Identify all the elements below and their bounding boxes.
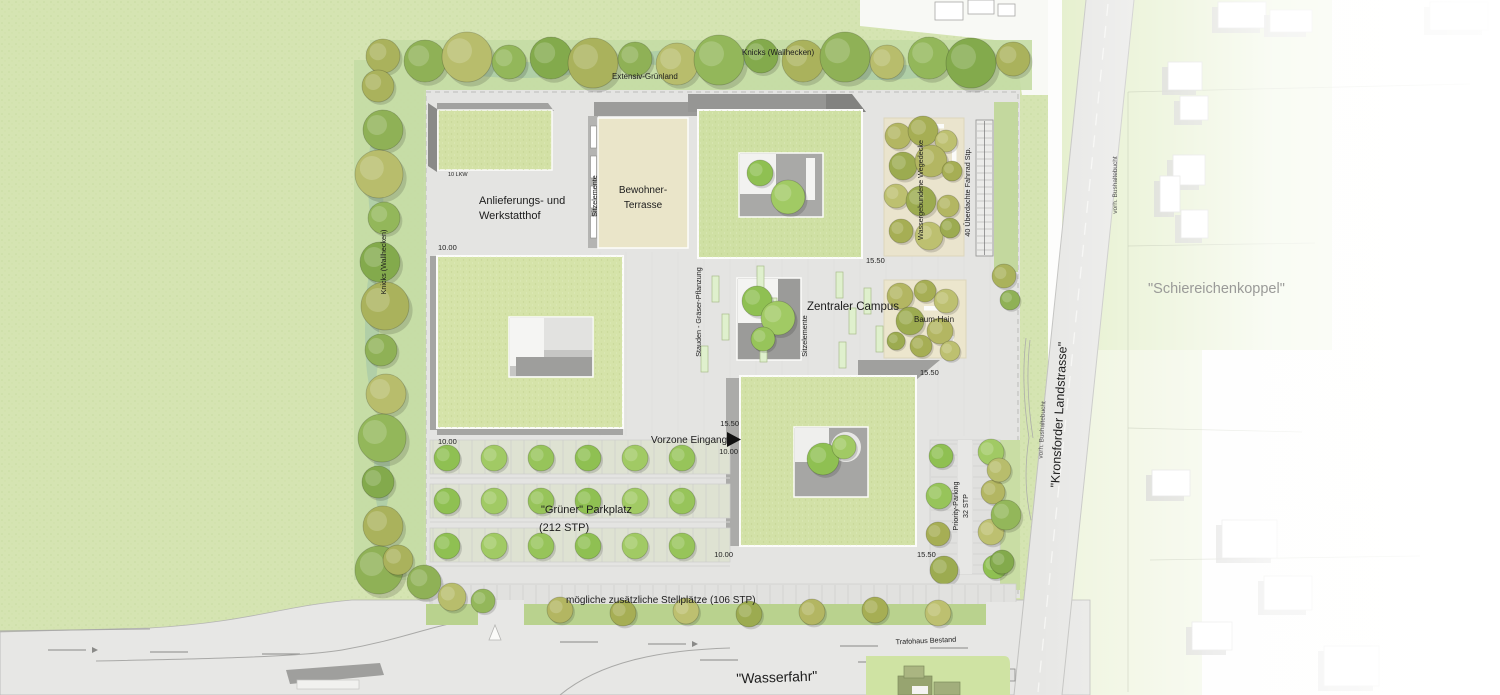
context-building-north	[968, 0, 994, 14]
tree-highlight	[981, 522, 994, 535]
label-lkw: 10 LKW	[448, 172, 468, 178]
tree-highlight	[367, 511, 387, 531]
tree-highlight	[484, 491, 497, 504]
tree-highlight	[484, 536, 497, 549]
label-zentraler-campus: Zentraler Campus	[807, 301, 899, 313]
tree-highlight	[672, 536, 685, 549]
tree-highlight	[368, 338, 384, 354]
tree-highlight	[928, 525, 940, 537]
bus-stop-platform	[297, 680, 359, 689]
tree-highlight	[942, 221, 952, 231]
tree-highlight	[989, 461, 1001, 473]
context-fade	[1040, 0, 1500, 695]
dim-se-bottom: 15.50	[917, 550, 936, 559]
tree-highlight	[621, 46, 638, 63]
label-baum-hain: Baum-Hain	[914, 315, 954, 324]
tree-highlight	[550, 600, 563, 613]
site-plan-drawing: Extensiv-Grünland Knicks (Wallhecken) Kn…	[0, 0, 1500, 695]
tree-highlight	[912, 42, 933, 63]
tree-highlight	[764, 305, 781, 322]
tree-highlight	[916, 283, 927, 294]
tree-highlight	[911, 120, 926, 135]
tree-highlight	[933, 560, 947, 574]
tree-highlight	[936, 292, 948, 304]
tree-highlight	[447, 38, 472, 63]
building-lkw-roof-texture	[438, 110, 552, 170]
tree-highlight	[939, 198, 950, 209]
seating-element	[712, 276, 719, 302]
tree-highlight	[495, 49, 512, 66]
tree-highlight	[873, 49, 890, 66]
tree-highlight	[912, 338, 923, 349]
context-building-north	[935, 2, 963, 20]
tree-highlight	[365, 74, 381, 90]
tree-highlight	[886, 187, 898, 199]
building-lkw-shadow	[428, 103, 437, 172]
tree-highlight	[371, 206, 387, 222]
label-sitzelemente-terrasse: Sitzelemente	[590, 175, 599, 217]
building-west-shadow-bottom	[437, 428, 623, 435]
tree-highlight	[437, 536, 450, 549]
label-priority-2: 32 STP	[961, 494, 970, 518]
seating-element	[839, 342, 846, 368]
label-knicks-left: Knicks (Wallhecken)	[379, 230, 388, 295]
tree-highlight	[994, 267, 1006, 279]
hedge-strip-northeast	[994, 102, 1018, 272]
tree-highlight	[360, 552, 384, 576]
tree-highlight	[531, 491, 544, 504]
seating-element	[591, 126, 597, 148]
tree-highlight	[360, 156, 384, 180]
tree-highlight	[578, 448, 591, 461]
context-building	[934, 682, 960, 695]
tree-highlight	[981, 442, 994, 455]
tree-highlight	[774, 184, 791, 201]
tree-highlight	[365, 470, 381, 486]
tree-highlight	[834, 438, 846, 450]
dim-ne: 15.50	[866, 256, 885, 265]
tree-highlight	[437, 491, 450, 504]
label-fahrrad-stp: 40 Überdachte Fahrrad Stp.	[963, 147, 972, 236]
label-anlieferung-2: Werkstatthof	[479, 210, 541, 222]
tree-highlight	[531, 536, 544, 549]
tree-highlight	[367, 115, 387, 135]
label-wegedecke: Wassergebundene Wegedecke	[916, 140, 925, 240]
tree-highlight	[750, 163, 763, 176]
tree-highlight	[1002, 293, 1012, 303]
driveway-gap-east	[986, 602, 1018, 628]
tree-highlight	[408, 45, 429, 66]
label-extensiv-gruenland: Extensiv-Grünland	[612, 72, 678, 81]
tree-highlight	[369, 43, 386, 60]
tree-highlight	[929, 486, 942, 499]
tree-highlight	[810, 447, 826, 463]
context-building-north	[998, 4, 1015, 16]
tree-highlight	[441, 587, 455, 601]
tree-highlight	[983, 483, 995, 495]
tree-highlight	[370, 379, 390, 399]
tree-highlight	[951, 44, 976, 69]
building-west-courtyard-floor2	[544, 318, 592, 350]
tree-highlight	[802, 602, 815, 615]
tree-highlight	[890, 286, 903, 299]
label-bewohner-2: Terrasse	[624, 200, 663, 211]
tree-highlight	[363, 420, 387, 444]
label-wasserfahr: "Wasserfahr"	[736, 668, 818, 687]
tree-highlight	[660, 48, 681, 69]
tree-highlight	[578, 536, 591, 549]
tree-highlight	[672, 448, 685, 461]
site-plan-canvas: Extensiv-Grünland Knicks (Wallhecken) Kn…	[0, 0, 1500, 695]
label-parkplatz-2: (212 STP)	[539, 522, 589, 534]
tree-highlight	[931, 447, 943, 459]
tree-highlight	[578, 491, 591, 504]
tree-highlight	[891, 222, 903, 234]
dim-left-bottom: 10.00	[438, 437, 457, 446]
bewohner-terrasse-area	[598, 118, 688, 248]
label-bewohner-1: Bewohner-	[619, 185, 667, 196]
tree-highlight	[899, 311, 913, 325]
tree-highlight	[531, 448, 544, 461]
context-building-roof	[912, 686, 928, 694]
tree-highlight	[473, 592, 485, 604]
tree-highlight	[437, 448, 450, 461]
tree-highlight	[625, 448, 638, 461]
tree-highlight	[672, 491, 685, 504]
tree-highlight	[992, 553, 1004, 565]
seating-element	[722, 314, 729, 340]
tree-highlight	[739, 604, 752, 617]
tree-highlight	[994, 504, 1009, 519]
tree-highlight	[534, 42, 555, 63]
tree-highlight	[888, 126, 901, 139]
dim-se-top: 15.50	[920, 368, 939, 377]
seating-element	[591, 216, 597, 238]
tree-highlight	[625, 491, 638, 504]
tree-highlight	[573, 44, 598, 69]
label-priority-1: Priority-Parking	[951, 481, 960, 530]
tree-highlight	[753, 330, 765, 342]
seating-element	[836, 272, 843, 298]
tree-highlight	[892, 156, 906, 170]
label-stellplaetze: mögliche zusätzliche Stellplätze (106 ST…	[566, 595, 756, 606]
label-parkplatz-1: "Grüner" Parkplatz	[541, 504, 632, 516]
building-ne-courtyard-bar	[806, 158, 815, 200]
tree-highlight	[937, 133, 948, 144]
context-building	[904, 666, 924, 678]
tree-highlight	[889, 334, 898, 343]
tree-highlight	[699, 41, 724, 66]
building-west-courtyard-dark	[516, 357, 592, 376]
label-schiereichenkoppel: "Schiereichenkoppel"	[1148, 281, 1285, 297]
label-bushaltebucht-north: vorh. Bushaltebucht	[1112, 156, 1119, 214]
tree-highlight	[410, 569, 427, 586]
label-knicks-top: Knicks (Wallhecken)	[742, 48, 815, 57]
tree-highlight	[825, 38, 850, 63]
tree-highlight	[928, 603, 941, 616]
dim-left-top: 10.00	[438, 243, 457, 252]
seating-element	[876, 326, 883, 352]
dim-entrance-top: 15.50	[720, 419, 739, 428]
label-anlieferung-1: Anlieferungs- und	[479, 195, 565, 207]
dim-se-bottom-left: 10.00	[714, 550, 733, 559]
tree-highlight	[625, 536, 638, 549]
dim-entrance-bottom: 10.00	[719, 447, 738, 456]
tree-highlight	[944, 164, 954, 174]
tree-highlight	[999, 46, 1016, 63]
label-sitzelemente-campus: Sitzelemente	[800, 315, 809, 357]
label-vorzone-eingang: Vorzone Eingang	[651, 435, 727, 446]
tree-highlight	[745, 290, 760, 305]
tree-highlight	[942, 344, 952, 354]
tree-highlight	[865, 600, 878, 613]
label-stauden-graeser: Stauden - Gräser-Pflanzung	[694, 267, 703, 357]
tree-highlight	[484, 448, 497, 461]
seating-element	[591, 156, 597, 178]
tree-highlight	[386, 549, 401, 564]
